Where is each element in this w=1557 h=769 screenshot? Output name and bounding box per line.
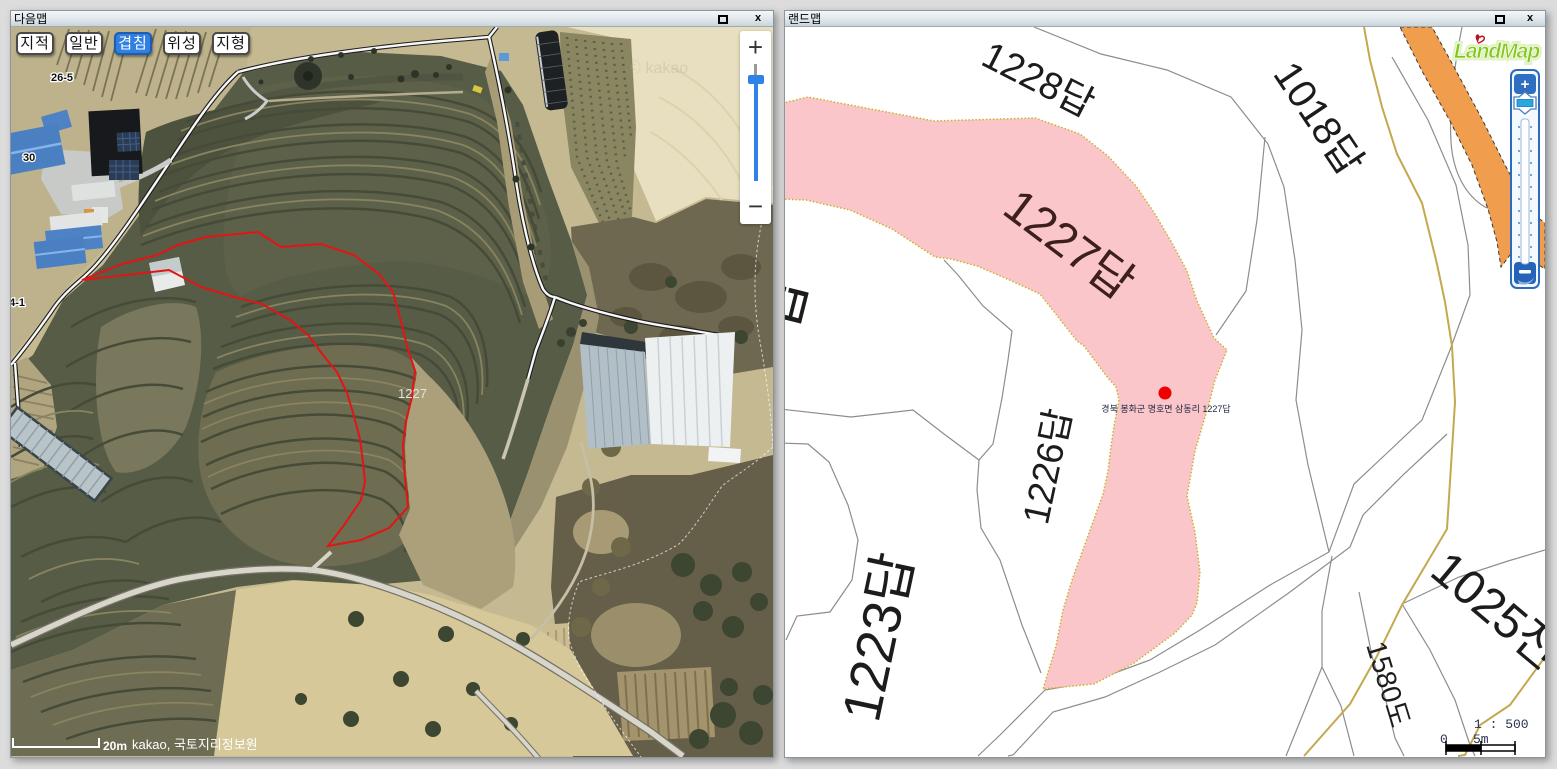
svg-text:30: 30 bbox=[23, 152, 35, 164]
svg-text:20m: 20m bbox=[103, 739, 127, 753]
svg-text:+: + bbox=[1521, 76, 1530, 93]
svg-text:LandMap: LandMap bbox=[1454, 40, 1540, 63]
svg-text:1 : 500: 1 : 500 bbox=[1474, 717, 1529, 732]
svg-text:26-5: 26-5 bbox=[51, 72, 73, 84]
svg-text:경북 봉화군 명호면 삼동리 1227답: 경북 봉화군 명호면 삼동리 1227답 bbox=[1101, 403, 1230, 414]
svg-text:ⓒ kakao: ⓒ kakao bbox=[625, 59, 688, 77]
svg-text:34-1: 34-1 bbox=[11, 297, 25, 309]
svg-text:1227: 1227 bbox=[398, 386, 427, 401]
svg-text:kakao, 국토지리정보원: kakao, 국토지리정보원 bbox=[132, 737, 258, 752]
